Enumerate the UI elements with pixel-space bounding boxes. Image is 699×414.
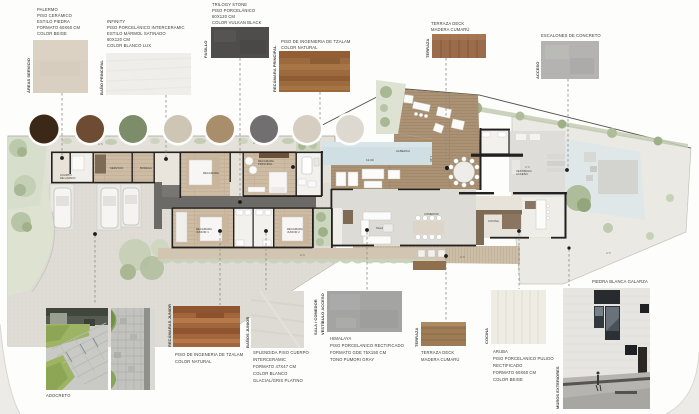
svg-text:GLACIAL/GRIS PLATINO: GLACIAL/GRIS PLATINO: [253, 378, 304, 383]
svg-text:COLOR BLANCO: COLOR BLANCO: [253, 371, 288, 376]
svg-text:PISO DE INGENERIA DE TZALAM: PISO DE INGENERIA DE TZALAM: [175, 352, 244, 357]
svg-text:ESTILO PIEDRA: ESTILO PIEDRA: [37, 19, 70, 24]
svg-text:FORMATO GDE 75X150 CM: FORMATO GDE 75X150 CM: [330, 350, 387, 355]
svg-text:ACCESO: ACCESO: [516, 172, 529, 176]
svg-text:SERVICIO: SERVICIO: [110, 166, 124, 170]
svg-text:60X120 CM: 60X120 CM: [212, 14, 235, 19]
svg-text:1.20: 1.20: [429, 156, 433, 162]
svg-text:ÁREAS SERVICIO: ÁREAS SERVICIO: [26, 58, 31, 93]
svg-text:TRILOGY STONE: TRILOGY STONE: [212, 2, 247, 7]
svg-text:⋄·=: ⋄·=: [460, 255, 465, 259]
svg-text:TERRAZA: TERRAZA: [425, 38, 430, 58]
svg-text:RECÁMARA PRINCIPAL: RECÁMARA PRINCIPAL: [272, 45, 277, 92]
svg-text:COLOR BEIGE: COLOR BEIGE: [493, 377, 523, 382]
svg-text:TONO PUMORI GRAY: TONO PUMORI GRAY: [330, 357, 374, 362]
svg-text:SALA / COMEDOR: SALA / COMEDOR: [313, 299, 318, 335]
svg-text:SALA: SALA: [376, 226, 383, 230]
svg-text:COLOR VULKAN BLACK: COLOR VULKAN BLACK: [212, 20, 262, 25]
svg-text:INFINITY: INFINITY: [107, 19, 125, 24]
svg-text:MADERA CUMARÚ: MADERA CUMARÚ: [421, 357, 460, 362]
svg-text:FORMATO 60X60 CM: FORMATO 60X60 CM: [493, 370, 537, 375]
svg-text:COMEDOR: COMEDOR: [424, 212, 439, 216]
svg-text:DE LAVADO: DE LAVADO: [60, 176, 76, 180]
svg-text:PIEDRA BLANCA GALARZA: PIEDRA BLANCA GALARZA: [592, 279, 648, 284]
svg-text:ESCALONES DE CONCRETO: ESCALONES DE CONCRETO: [541, 33, 601, 38]
svg-text:ACCESO: ACCESO: [535, 62, 540, 79]
svg-text:60X120 CM: 60X120 CM: [107, 37, 130, 42]
svg-text:JUNIOR 1: JUNIOR 1: [196, 230, 209, 234]
svg-text:PISO PORCELÁNICO INTERCERAMIC: PISO PORCELÁNICO INTERCERAMIC: [107, 25, 185, 30]
svg-text:MADERA CUMARÚ: MADERA CUMARÚ: [431, 27, 470, 32]
svg-text:INTERCERAMIC: INTERCERAMIC: [253, 357, 286, 362]
svg-text:PISO PORCELANICO PULIDO: PISO PORCELANICO PULIDO: [493, 356, 554, 361]
svg-text:VESTÍBULO ACCESO: VESTÍBULO ACCESO: [320, 293, 325, 335]
svg-text:PRINCIPAL: PRINCIPAL: [258, 162, 273, 166]
svg-text:BAÑOS JUNIOR: BAÑOS JUNIOR: [245, 317, 250, 348]
svg-text:HIMALAYA: HIMALAYA: [330, 336, 351, 341]
svg-text:RECAMARA: RECAMARA: [203, 171, 219, 175]
svg-text:COCINA: COCINA: [488, 219, 499, 223]
svg-text:TERRAZA DECK: TERRAZA DECK: [431, 21, 464, 26]
svg-text:COLOR BLANCO LUX: COLOR BLANCO LUX: [107, 43, 151, 48]
svg-text:COLOR NATURAL: COLOR NATURAL: [175, 359, 212, 364]
svg-text:TERRAZA: TERRAZA: [414, 327, 419, 347]
svg-text:RECTIFICADO: RECTIFICADO: [493, 363, 523, 368]
svg-text:TERRAZA DECK: TERRAZA DECK: [421, 350, 454, 355]
svg-text:PISO DE INGENIERIA DE TZALAM: PISO DE INGENIERIA DE TZALAM: [281, 39, 351, 44]
svg-text:ALBERCA: ALBERCA: [396, 149, 410, 153]
svg-text:SPLENDIDA PISO CUERPO: SPLENDIDA PISO CUERPO: [253, 350, 309, 355]
svg-text:FORMATO 60X60 CM: FORMATO 60X60 CM: [37, 25, 81, 30]
svg-text:ESTILO MÁRMOL SATINADO: ESTILO MÁRMOL SATINADO: [107, 31, 166, 36]
svg-text:BODEGA: BODEGA: [140, 166, 152, 170]
svg-text:MUROS EXTERIORES: MUROS EXTERIORES: [555, 366, 560, 409]
svg-text:PISO PORCELÁNICO: PISO PORCELÁNICO: [212, 8, 256, 13]
svg-text:FORMATO 47X47 CM: FORMATO 47X47 CM: [253, 364, 297, 369]
svg-text:COCINA: COCINA: [484, 328, 489, 344]
svg-text:12.00: 12.00: [366, 158, 374, 162]
svg-text:⋄·=: ⋄·=: [606, 251, 611, 255]
svg-text:COLOR NATURAL: COLOR NATURAL: [281, 45, 318, 50]
svg-text:PISO CERÁMICO: PISO CERÁMICO: [37, 13, 73, 18]
svg-text:BAÑO PRINCIPAL: BAÑO PRINCIPAL: [99, 60, 104, 95]
svg-text:PISO PORCELANICO RECTIFICADO: PISO PORCELANICO RECTIFICADO: [330, 343, 405, 348]
svg-text:ADOCRETO: ADOCRETO: [46, 393, 71, 398]
svg-text:RECÁMARAS JUNIOR: RECÁMARAS JUNIOR: [167, 304, 172, 347]
svg-text:ARUBA: ARUBA: [493, 349, 508, 354]
svg-text:JUNIOR 2: JUNIOR 2: [287, 230, 300, 234]
svg-text:PASILLO: PASILLO: [203, 41, 208, 58]
svg-text:⋄·=: ⋄·=: [300, 253, 305, 257]
svg-text:COLOR BEIGE: COLOR BEIGE: [37, 31, 67, 36]
svg-text:PALERMO: PALERMO: [37, 7, 59, 12]
